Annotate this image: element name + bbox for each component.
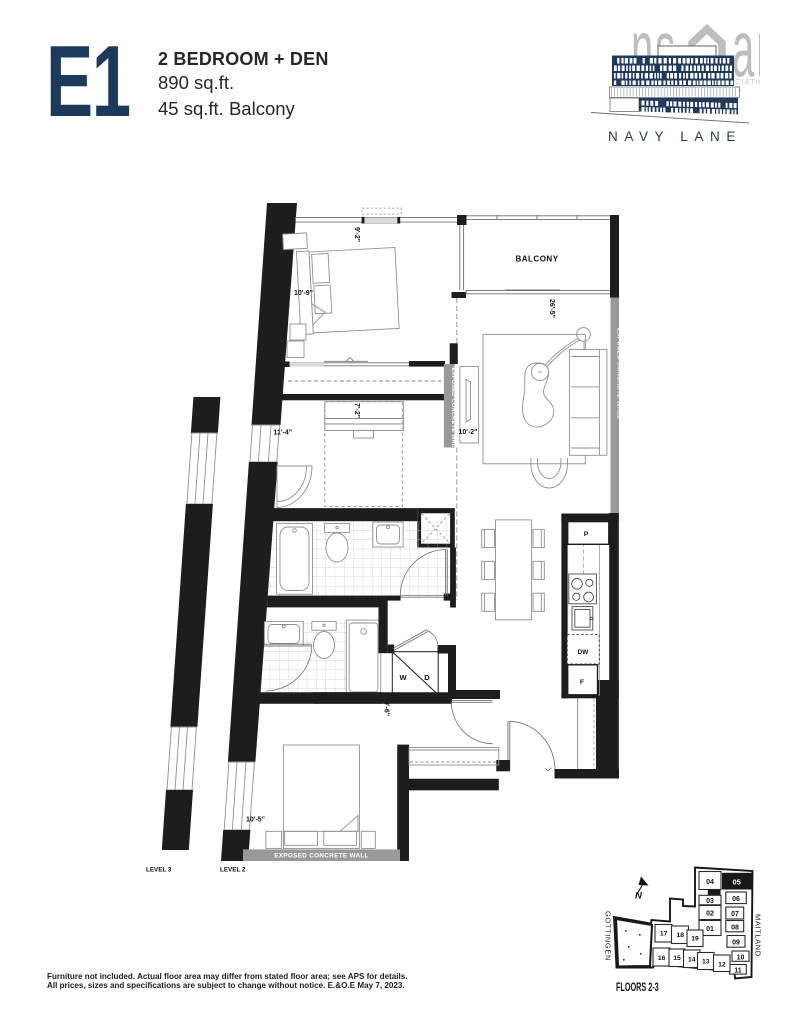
- svg-text:04: 04: [706, 879, 714, 886]
- svg-text:07: 07: [731, 911, 739, 918]
- svg-text:19: 19: [691, 936, 699, 943]
- svg-text:MAITLAND: MAITLAND: [754, 914, 763, 957]
- svg-text:17: 17: [660, 931, 668, 938]
- svg-text:LEVEL 3: LEVEL 3: [146, 867, 172, 874]
- svg-text:P: P: [584, 531, 589, 538]
- svg-text:GOTTINGEN: GOTTINGEN: [604, 911, 613, 961]
- svg-text:DW: DW: [578, 649, 590, 656]
- svg-text:03: 03: [706, 898, 714, 905]
- svg-text:7'-2": 7'-2": [353, 403, 360, 418]
- svg-text:EXPOSED CONCRETE WALL: EXPOSED CONCRETE WALL: [450, 368, 456, 452]
- svg-text:16: 16: [658, 955, 666, 962]
- svg-text:08: 08: [731, 925, 739, 932]
- svg-text:BALCONY: BALCONY: [515, 255, 558, 264]
- svg-text:9'-2": 9'-2": [353, 227, 360, 242]
- svg-text:N: N: [635, 891, 643, 902]
- svg-text:05: 05: [733, 878, 741, 887]
- svg-text:W: W: [399, 673, 407, 682]
- svg-text:18: 18: [677, 932, 685, 939]
- svg-text:F: F: [580, 679, 584, 686]
- svg-text:11'-4": 11'-4": [274, 430, 293, 437]
- svg-text:EXPOSED CONCRETE WALL: EXPOSED CONCRETE WALL: [615, 328, 621, 419]
- svg-text:10'-9": 10'-9": [294, 290, 313, 297]
- svg-text:EXPOSED CONCRETE WALL: EXPOSED CONCRETE WALL: [274, 853, 368, 860]
- svg-text:LEVEL 2: LEVEL 2: [220, 867, 246, 874]
- svg-text:06: 06: [732, 896, 740, 903]
- svg-text:10: 10: [737, 955, 745, 962]
- svg-text:02: 02: [706, 911, 714, 918]
- svg-text:13: 13: [702, 959, 710, 966]
- svg-text:26'-5": 26'-5": [548, 299, 555, 318]
- svg-text:12: 12: [718, 961, 726, 968]
- svg-text:11: 11: [734, 968, 742, 975]
- svg-text:FLOORS 2-3: FLOORS 2-3: [616, 981, 659, 994]
- svg-text:01: 01: [706, 926, 714, 933]
- svg-text:09: 09: [732, 940, 740, 947]
- svg-text:D: D: [424, 673, 430, 682]
- svg-text:14: 14: [688, 956, 696, 963]
- svg-text:15: 15: [673, 955, 681, 962]
- svg-text:10'-5": 10'-5": [246, 817, 265, 824]
- svg-text:10'-2": 10'-2": [459, 429, 478, 436]
